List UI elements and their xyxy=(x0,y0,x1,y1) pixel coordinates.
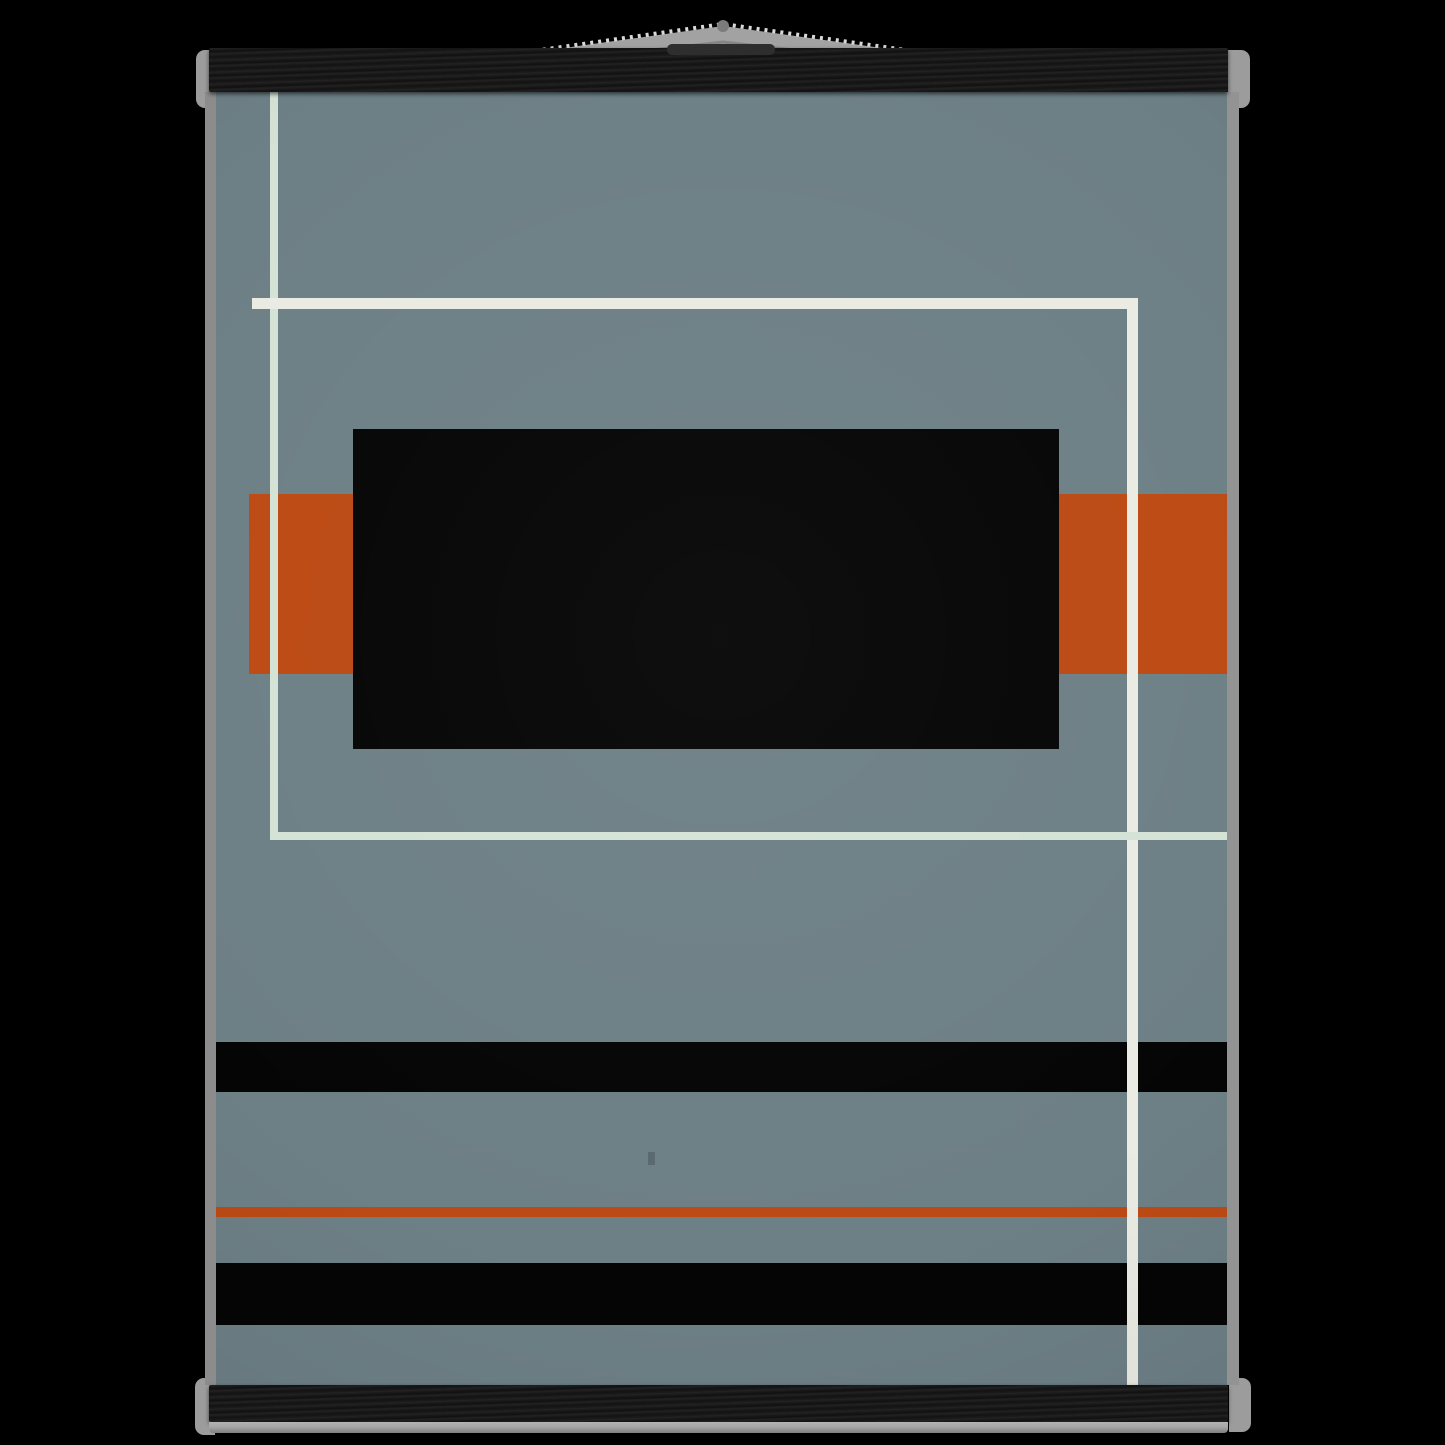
center-black-rectangle xyxy=(353,429,1059,749)
black-stripe-upper xyxy=(216,1042,1227,1092)
cream-horizontal-line xyxy=(252,298,1138,309)
bottom-hanger-lip xyxy=(209,1422,1228,1433)
mint-horizontal-line xyxy=(270,832,1227,840)
bottom-hanger-bar xyxy=(209,1385,1228,1422)
orange-block-right xyxy=(1059,494,1227,674)
poster-mockup-scene xyxy=(0,0,1445,1445)
mint-vertical-line xyxy=(270,92,278,839)
paper-speck xyxy=(648,1152,655,1165)
black-stripe-lower xyxy=(216,1263,1227,1325)
artwork-layer xyxy=(0,0,1445,1445)
orange-block-left xyxy=(249,494,353,674)
cord-notch-shadow xyxy=(667,44,775,55)
orange-rule-line xyxy=(216,1207,1227,1217)
cream-vertical-line xyxy=(1127,298,1138,1385)
